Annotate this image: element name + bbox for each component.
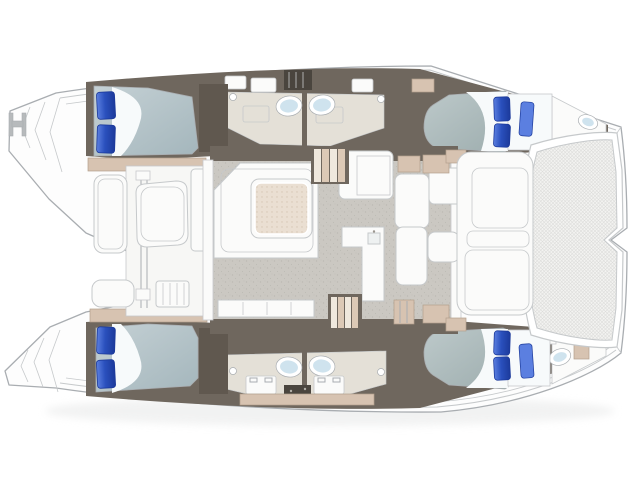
forward-cockpit <box>457 152 533 315</box>
bench-cushion <box>472 168 528 228</box>
starboard-heads <box>222 350 386 405</box>
heads-sole <box>240 394 374 405</box>
floor-plan-drawing <box>0 0 640 480</box>
heads-partition <box>302 90 307 146</box>
aft-cockpit <box>92 166 212 316</box>
port-aft-wardrobe <box>199 84 228 152</box>
heads-fitting <box>230 368 237 375</box>
catamaran-floor-plan <box>0 0 640 480</box>
bench-cushion <box>465 250 529 310</box>
aft-sliding-door-wall <box>203 160 213 320</box>
starboard-companionway-stairs <box>328 294 362 330</box>
pillow <box>493 357 510 381</box>
port-heads-fitting <box>378 96 385 103</box>
cockpit-steps <box>156 281 189 307</box>
pillow <box>494 331 511 356</box>
davit-fitting <box>136 289 150 300</box>
pillow <box>494 97 511 122</box>
pillow <box>97 327 116 355</box>
port-heads-fitting <box>230 94 237 101</box>
pillow <box>97 125 116 154</box>
galley-counter <box>395 174 429 228</box>
trampoline-net <box>527 140 617 340</box>
dinette <box>214 163 318 258</box>
port-aft-cabin-bed <box>94 86 198 156</box>
davit-fitting <box>136 171 150 180</box>
saloon-cabinets <box>218 300 314 317</box>
cockpit-bench <box>92 280 134 307</box>
shower-tray <box>246 376 276 394</box>
pillow <box>519 344 534 379</box>
pillow <box>96 92 115 120</box>
cockpit-bench <box>94 175 127 253</box>
pillow <box>493 124 510 148</box>
bench-cushion <box>467 231 529 247</box>
pillow <box>96 360 115 389</box>
port-heads-locker <box>284 70 312 90</box>
starboard-aft-wardrobe <box>199 328 228 394</box>
galley-sink-icon <box>368 233 380 244</box>
nav-seat <box>428 232 459 262</box>
heads-fitting <box>378 369 385 376</box>
cockpit-table <box>136 181 188 247</box>
bow-trampoline <box>520 127 623 353</box>
starboard-forward-cabin-bed <box>424 328 550 389</box>
port-companionway-stairs <box>311 146 349 184</box>
shower-tray <box>314 376 344 394</box>
galley-island <box>396 227 427 285</box>
starboard-aft-cabin-bed <box>96 324 198 393</box>
pillow <box>519 102 534 137</box>
port-forward-cabin-bed <box>424 91 552 152</box>
